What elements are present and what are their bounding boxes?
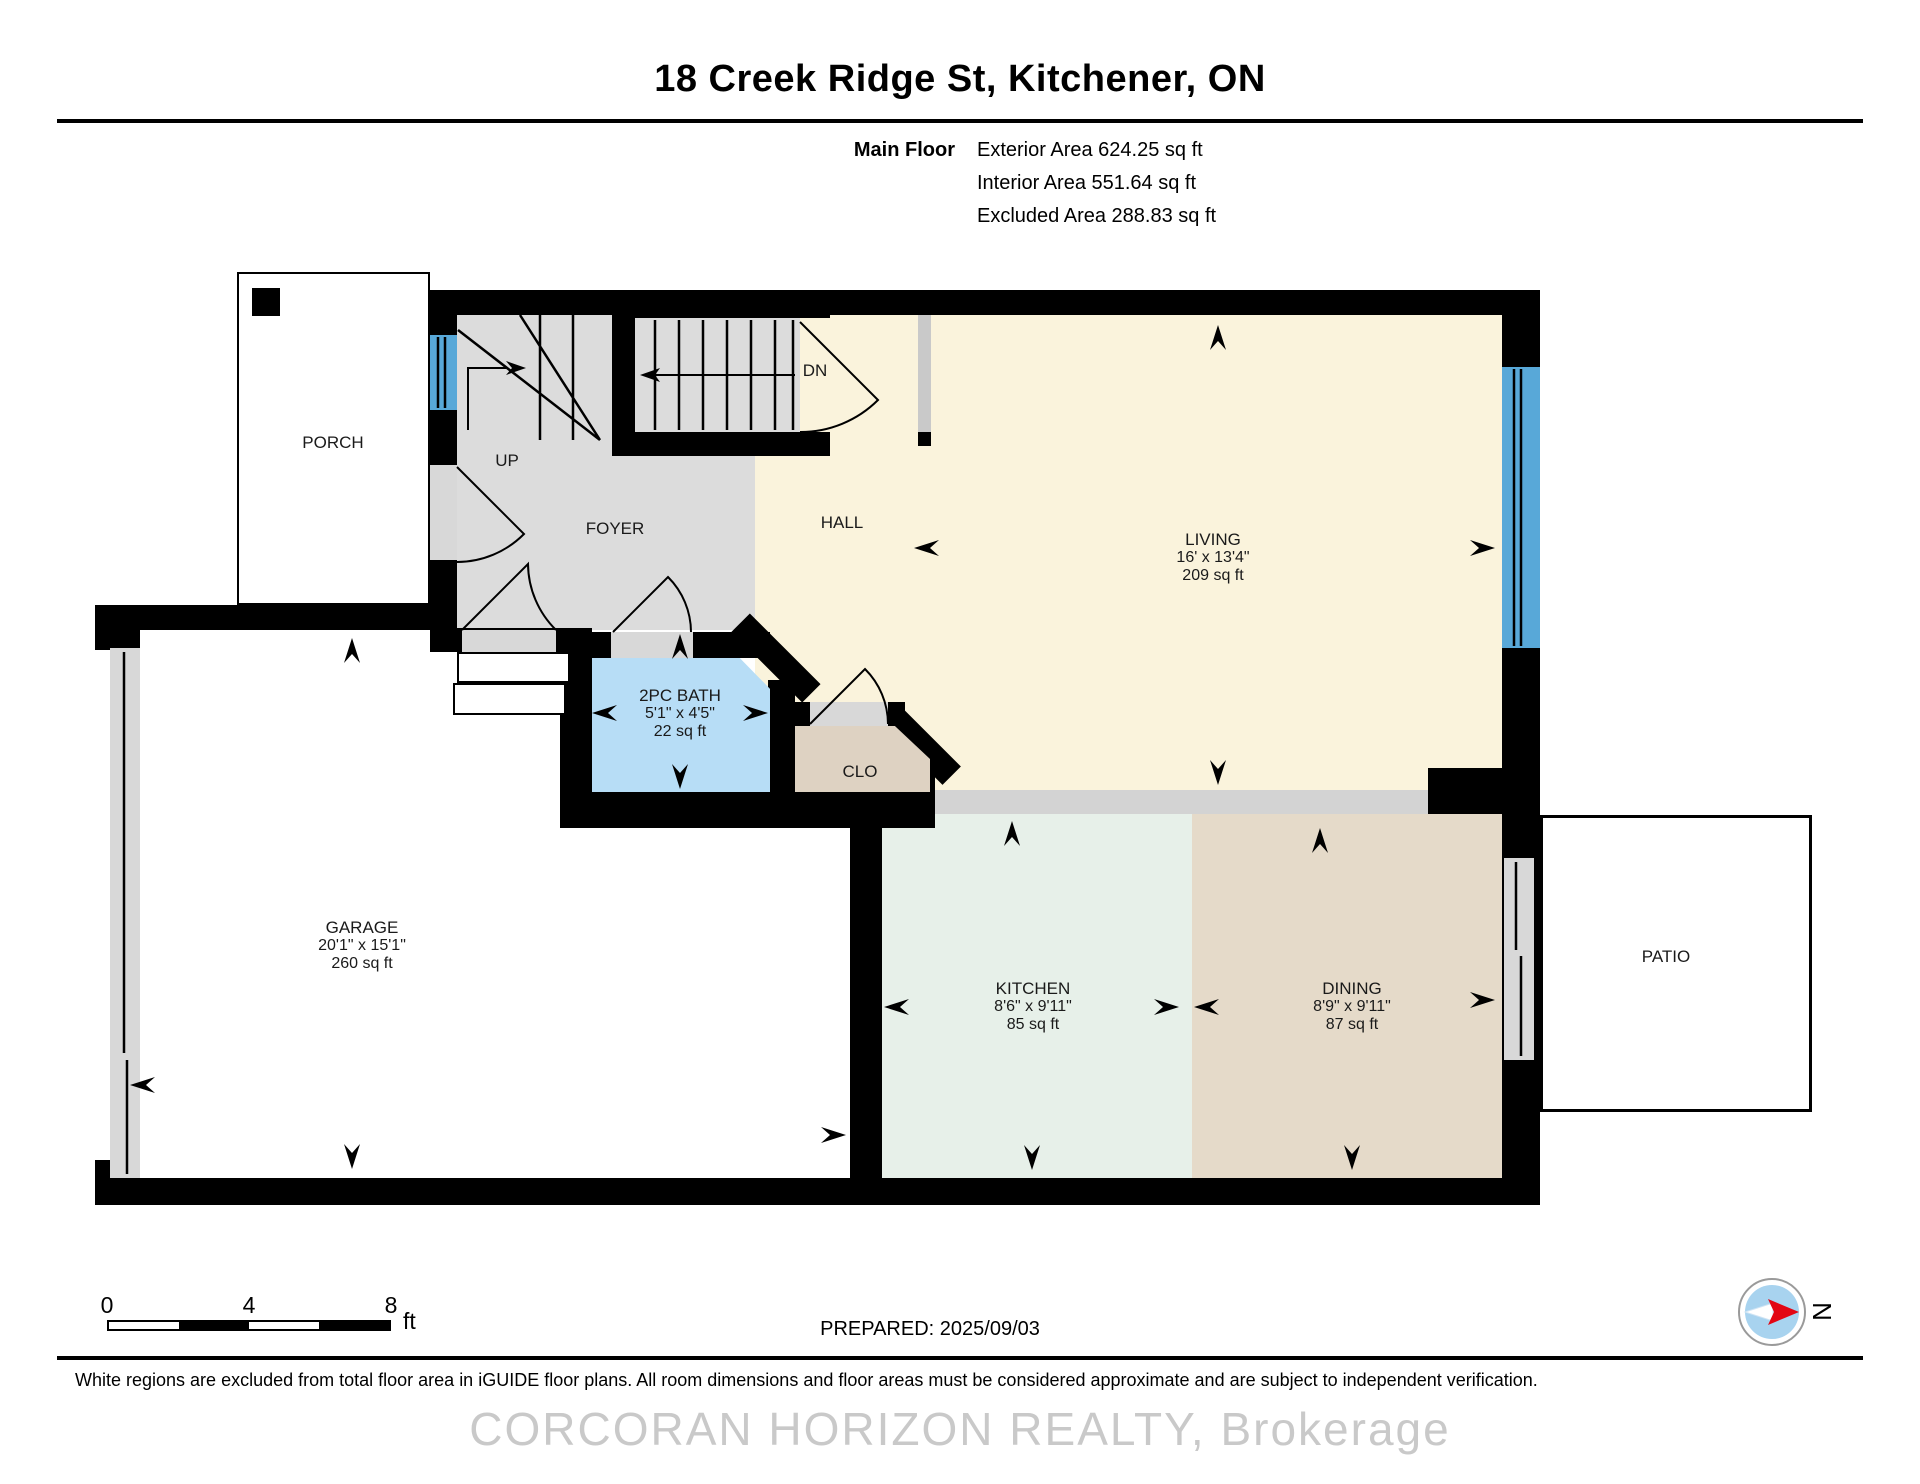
page-title: 18 Creek Ridge St, Kitchener, ON [0,58,1920,101]
scale-tick-8: 8 [385,1292,398,1319]
bath-door-opening [611,632,693,658]
stair-railing [918,315,931,432]
closet-label: CLO [843,763,878,781]
front-door-opening [430,465,457,560]
living-window [1502,367,1540,648]
garage-overhead-door [110,648,140,1178]
porch-label: PORCH [302,434,363,452]
bottom-wall [95,1178,1540,1205]
up-label: UP [495,452,519,470]
living-corner-wall [1428,768,1502,814]
foyer-label: FOYER [586,520,645,538]
scale-tick-0: 0 [101,1292,114,1319]
closet-door-opening [810,702,888,726]
kitchen-label: KITCHEN 8'6" x 9'11" 85 sq ft [994,980,1072,1034]
patio-label: PATIO [1642,948,1691,966]
garage-door-opening [462,630,556,652]
header-divider [57,119,1863,123]
porch-window [430,335,457,410]
patio-sliding-door [1504,858,1534,1060]
disclaimer-text: White regions are excluded from total fl… [75,1370,1538,1391]
floorplan-page: 18 Creek Ridge St, Kitchener, ON Main Fl… [0,0,1920,1484]
bath-label: 2PC BATH 5'1" x 4'5" 22 sq ft [639,687,721,741]
scale-bar [107,1320,391,1331]
dn-stairs-room [635,318,800,432]
garage-label: GARAGE 20'1" x 15'1" 260 sq ft [318,919,406,973]
stair-railing-post [918,432,931,446]
dn-label: DN [803,362,828,380]
dimension-arrow [344,638,360,663]
garage-corner-top [95,605,140,650]
compass-icon [1732,1274,1816,1354]
entry-step-2 [453,683,566,715]
top-wall [430,290,1540,315]
footer-divider [57,1356,1863,1360]
hall-label: HALL [821,514,864,532]
dining-label: DINING 8'9" x 9'11" 87 sq ft [1313,980,1391,1034]
interior-area-text: Interior Area 551.64 sq ft [977,172,1477,195]
dimension-arrow [821,1127,846,1143]
exterior-area-text: Exterior Area 624.25 sq ft [977,139,1477,162]
garage-top-wall [95,605,457,630]
compass-north-label: N [1806,1302,1837,1321]
entry-step-1 [457,652,570,683]
living-label: LIVING 16' x 13'4" 209 sq ft [1176,531,1249,585]
dimension-arrow [344,1144,360,1169]
garage-kitchen-wall [850,812,882,1178]
bath-bottom-wall [560,788,935,828]
up-stairs-room [457,315,612,440]
prepared-date: PREPARED: 2025/09/03 [730,1318,1130,1341]
scale-tick-4: 4 [243,1292,256,1319]
floor-transition-strip [935,790,1428,814]
scale-unit-label: ft [403,1308,416,1335]
excluded-area-text: Excluded Area 288.83 sq ft [977,205,1477,228]
brokerage-watermark: CORCORAN HORIZON REALTY, Brokerage [0,1402,1920,1456]
floor-name-label: Main Floor [655,139,955,162]
porch-post [252,288,280,316]
